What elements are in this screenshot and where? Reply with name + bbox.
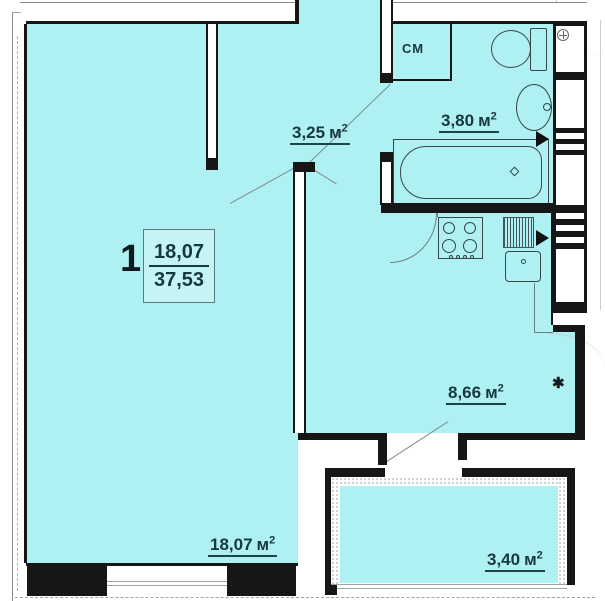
site-boundary-dashed: [15, 597, 595, 598]
unit-area-box: 18,07 37,53: [143, 229, 215, 303]
balcony-wall-right: [567, 468, 575, 585]
balcony-door-jamb-right: [458, 433, 467, 460]
balcony-glazing-left: [331, 477, 340, 585]
wall-top: [20, 2, 298, 24]
wall-left-step: [12, 12, 21, 13]
area-label-living-room: 18,07м2: [208, 536, 277, 557]
stove-knob: [449, 255, 453, 259]
stove-burner: [442, 239, 456, 253]
wall-bottom-pier-left: [27, 563, 107, 596]
wall-top-end: [295, 0, 299, 24]
vent-arrow-icon: [536, 230, 549, 246]
shaft-band: [556, 219, 584, 225]
wall-bath-kitchen: [381, 203, 553, 213]
balcony-sill-line2: [331, 588, 567, 589]
window-line: [107, 581, 227, 582]
wall-left-axis: [17, 36, 19, 591]
area-label-balcony: 3,40м2: [485, 551, 545, 572]
wall-kitchen-bottom-left: [298, 433, 382, 440]
toilet-bowl: [491, 30, 531, 68]
hallway-floor: [298, 0, 381, 433]
balcony-wall-left-foot: [325, 585, 337, 595]
fan-icon: [557, 29, 569, 41]
shaft-band: [556, 72, 584, 80]
area-label-kitchen: 8,66м2: [446, 384, 506, 405]
toilet-tank: [530, 28, 547, 71]
wall-kitchen-right: [575, 330, 585, 440]
balcony-glazing-top: [331, 477, 567, 486]
balcony-sill-line: [331, 584, 567, 585]
balcony-door-jamb-left: [378, 433, 387, 465]
unit-total-area: 37,53: [154, 267, 204, 291]
kitchen-sink: [505, 251, 541, 282]
unit-living-area: 18,07: [149, 241, 209, 267]
window-line2: [107, 585, 227, 586]
stove-knob: [456, 255, 460, 259]
star-icon: ✱: [552, 374, 565, 392]
unit-number: 1: [120, 240, 141, 278]
wall-top-right: [381, 2, 587, 24]
building-edge-line: [600, 20, 601, 310]
stove-burner: [464, 222, 476, 234]
shaft-band: [556, 150, 584, 155]
washbasin-drain: [543, 103, 551, 111]
balcony-wall-top-left: [325, 468, 385, 477]
wall-kitchen-bottom-right: [462, 433, 585, 440]
kitchen-sink-drain: [521, 259, 526, 264]
balcony-wall-top-right: [462, 468, 575, 477]
balcony-glazing-right: [558, 477, 567, 585]
wall-hall-bath-jamb-bottom: [380, 152, 393, 162]
wall-partition-hallway-cap: [206, 158, 218, 170]
floor-plan: 3,25м2 3,80м2 8,66м2 18,07м2 3,40м2 СМ 1…: [0, 0, 605, 601]
shaft-band: [556, 205, 584, 213]
wall-left-inner: [24, 24, 27, 563]
counter-edge-right: [534, 283, 535, 333]
vent-arrow-icon: [536, 131, 549, 147]
wall-bottom-pier-right: [227, 563, 296, 596]
shaft-band: [556, 243, 584, 249]
shaft-band: [556, 231, 584, 237]
shaft-column: [553, 23, 587, 313]
stove-knob: [463, 255, 467, 259]
drain-rack-grille: [503, 217, 534, 248]
washing-machine-label: СМ: [402, 41, 424, 56]
wall-living-kitchen-cap: [293, 162, 315, 172]
wall-partition-hallway: [206, 24, 218, 170]
stove-knob: [470, 255, 474, 259]
area-label-hallway: 3,25м2: [290, 124, 350, 145]
shaft-band: [556, 128, 584, 133]
bathtub-inner: [400, 146, 542, 199]
shaft-band: [556, 139, 584, 144]
wall-living-kitchen: [293, 162, 306, 433]
area-label-bathroom: 3,80м2: [439, 112, 499, 133]
balcony-wall-left: [325, 468, 331, 595]
stove-burner: [443, 222, 455, 234]
stove-burner: [463, 239, 477, 253]
shaft-band: [556, 302, 584, 310]
